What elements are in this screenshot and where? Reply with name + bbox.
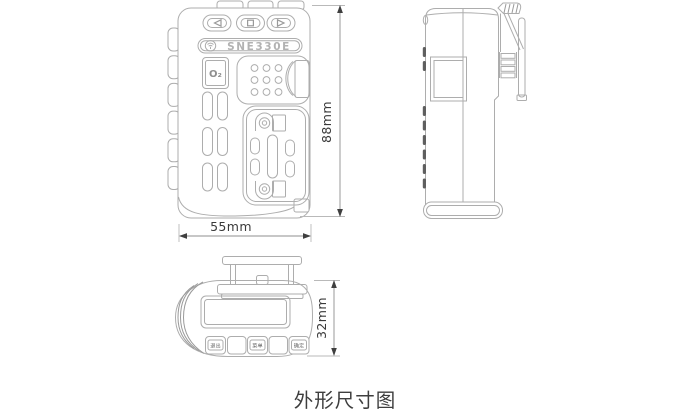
model-label: SNE330E	[227, 41, 291, 53]
device-body-side	[426, 9, 499, 205]
edge-shading	[178, 282, 204, 354]
thickness-value: 32mm	[314, 297, 329, 339]
dimension-width: 55mm	[179, 219, 311, 242]
key-ok-label: 确定	[294, 341, 304, 349]
display-window	[201, 296, 290, 328]
width-value: 55mm	[210, 219, 252, 234]
dimension-thickness: 32mm	[307, 280, 340, 356]
key-blank	[269, 337, 288, 355]
front-view: SNE330E O₂	[168, 1, 310, 218]
key-menu-label: 菜单	[252, 341, 262, 349]
height-value: 88mm	[319, 101, 334, 143]
key-exit-label: 退出	[210, 341, 220, 349]
key-blank	[228, 337, 247, 355]
o2-label: O₂	[209, 69, 222, 80]
belt-clip	[498, 3, 527, 101]
drawing-caption: 外形尺寸图	[250, 384, 440, 413]
clip-bar	[519, 18, 526, 97]
clip-mount	[218, 257, 308, 299]
top-view: 退出 菜单 确定	[176, 257, 313, 357]
key-row: 退出 菜单 确定	[206, 337, 310, 355]
clip-spring	[500, 52, 517, 78]
side-view	[423, 3, 527, 219]
bottom-notch	[294, 199, 309, 212]
dimension-drawing: SNE330E O₂	[0, 0, 700, 412]
side-bottom-cap	[424, 202, 503, 219]
